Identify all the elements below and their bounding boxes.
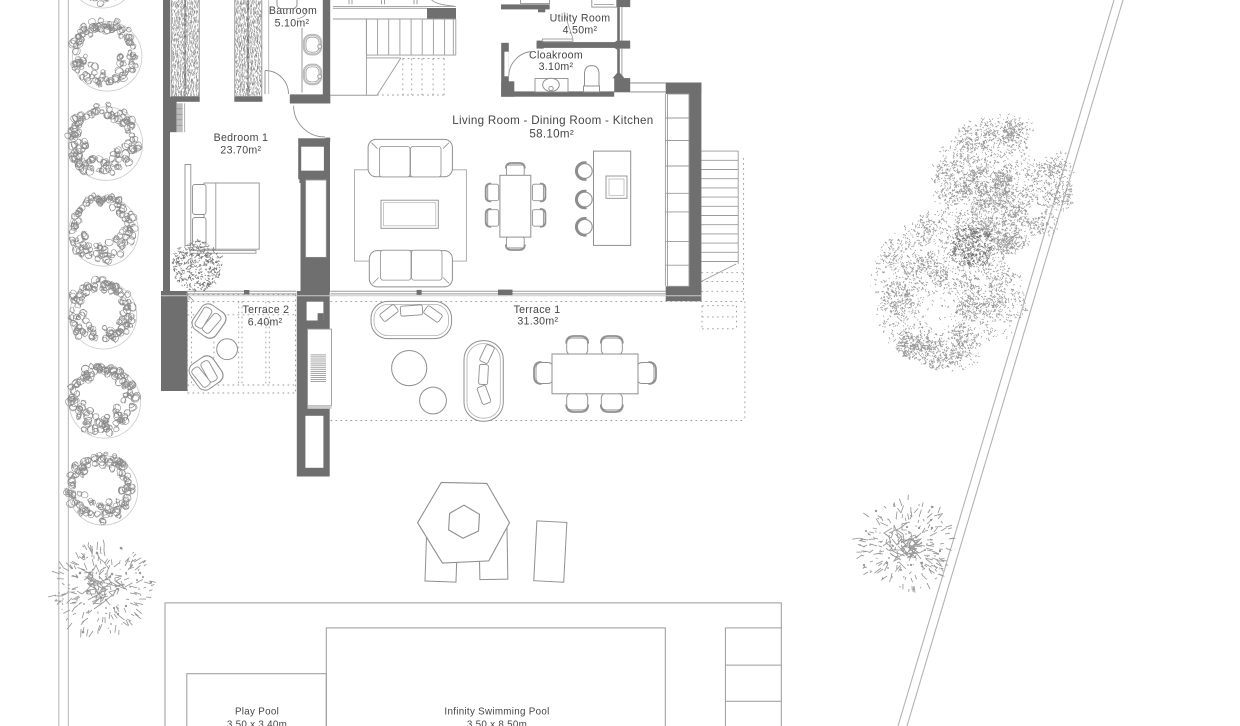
svg-text:5.10m²: 5.10m² (275, 18, 310, 30)
svg-text:Bedroom 1: Bedroom 1 (214, 132, 269, 144)
svg-text:3.50 x 8.50m: 3.50 x 8.50m (467, 720, 527, 726)
svg-text:31.30m²: 31.30m² (517, 316, 558, 328)
svg-text:Terrace 1: Terrace 1 (514, 304, 561, 316)
svg-text:6.40m²: 6.40m² (248, 317, 283, 329)
svg-text:23.70m²: 23.70m² (220, 144, 261, 156)
svg-text:Play Pool: Play Pool (235, 707, 279, 718)
svg-text:Terrace 2: Terrace 2 (242, 304, 289, 316)
svg-text:3.50 x 3.40m: 3.50 x 3.40m (227, 720, 287, 726)
svg-text:4.50m²: 4.50m² (563, 25, 598, 37)
svg-text:Utility Room: Utility Room (550, 13, 611, 25)
svg-text:58.10m²: 58.10m² (529, 127, 574, 140)
svg-text:Living Room - Dining Room - Ki: Living Room - Dining Room - Kitchen (452, 114, 653, 127)
svg-text:Cloakroom: Cloakroom (529, 50, 583, 62)
svg-text:Infinity Swimming Pool: Infinity Swimming Pool (444, 707, 549, 718)
svg-text:3.10m²: 3.10m² (539, 61, 574, 73)
